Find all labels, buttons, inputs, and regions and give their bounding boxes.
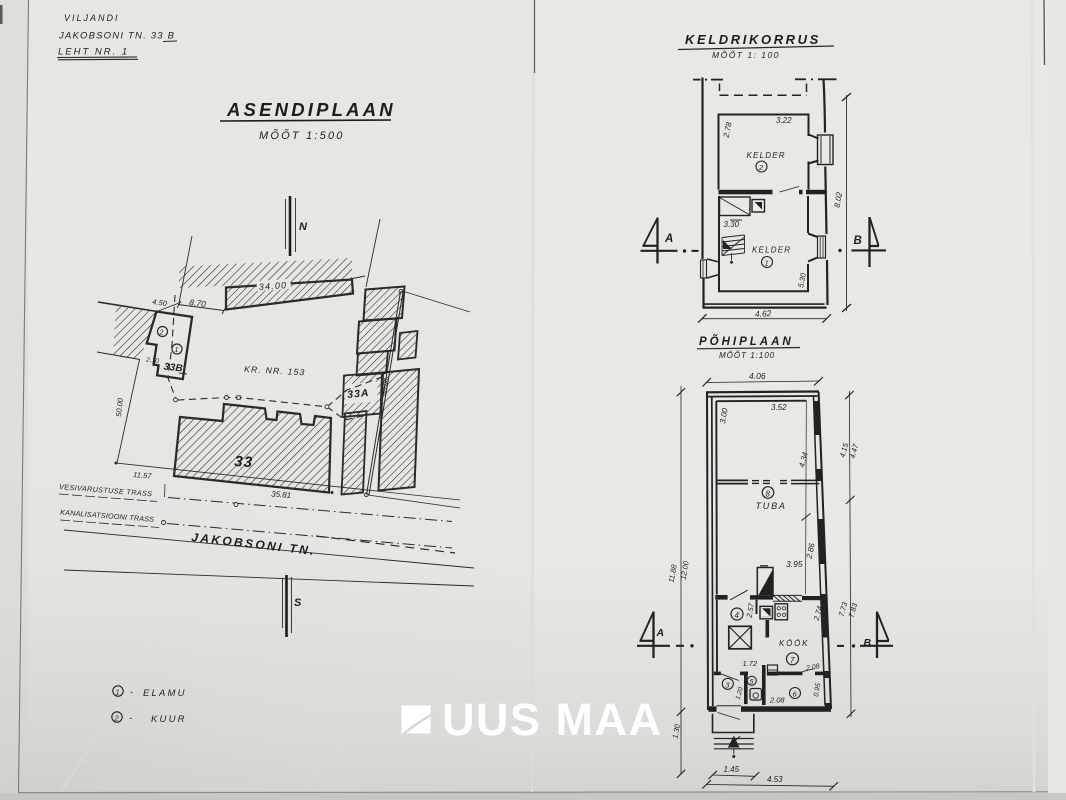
svg-text:-: - [130,687,133,698]
svg-text:35.81: 35.81 [271,490,292,500]
svg-text:2.08: 2.08 [769,696,785,705]
svg-text:MÕÕT 1: 100: MÕÕT 1: 100 [712,50,780,60]
svg-text:ASENDIPLAAN: ASENDIPLAAN [226,99,396,120]
svg-text:KUUR: KUUR [151,714,187,725]
svg-text:A: A [664,233,673,245]
svg-text:33B: 33B [163,362,183,375]
svg-text:ELAMU: ELAMU [143,688,187,699]
svg-text:4: 4 [735,611,740,620]
svg-text:8.70: 8.70 [189,297,207,309]
svg-text:2: 2 [758,163,764,172]
svg-text:4.06: 4.06 [749,371,766,381]
svg-text:4.62: 4.62 [755,308,772,319]
svg-text:KELDER: KELDER [747,151,786,160]
svg-text:4.53: 4.53 [767,775,783,784]
svg-text:33: 33 [234,453,254,471]
svg-text:B: B [864,637,872,649]
svg-text:7: 7 [790,656,795,665]
svg-text:-: - [129,713,132,724]
svg-text:34.00: 34.00 [258,280,287,292]
svg-text:JAKOBSONI TN. 33 B: JAKOBSONI TN. 33 B [58,31,175,42]
svg-text:11.57: 11.57 [133,470,153,481]
svg-text:LEHT NR. 1: LEHT NR. 1 [58,47,129,58]
svg-text:KÖÖK: KÖÖK [779,639,809,648]
svg-text:2.10: 2.10 [145,356,160,364]
svg-text:B: B [854,235,862,247]
svg-text:A: A [656,627,665,639]
svg-text:UUS MAA: UUS MAA [442,694,663,745]
svg-text:PÕHIPLAAN: PÕHIPLAAN [699,335,794,348]
svg-text:MÕÕT 1:500: MÕÕT 1:500 [259,129,345,142]
svg-text:3.22: 3.22 [776,116,792,125]
svg-text:2: 2 [159,330,164,337]
svg-text:1: 1 [765,259,769,268]
svg-text:N: N [299,221,308,233]
svg-text:KELDRIKORRUS: KELDRIKORRUS [685,32,821,47]
svg-text:1.72: 1.72 [743,659,758,668]
svg-text:MÕÕT 1:100: MÕÕT 1:100 [719,351,775,360]
svg-text:3.52: 3.52 [771,403,787,412]
svg-text:3.95: 3.95 [786,559,803,569]
svg-text:VILJANDI: VILJANDI [64,13,120,23]
svg-text:3.30: 3.30 [724,220,740,229]
svg-text:5: 5 [750,679,754,686]
svg-text:8: 8 [766,490,771,499]
svg-text:1: 1 [116,688,120,697]
svg-text:TUBA: TUBA [756,501,787,511]
svg-text:KELDER: KELDER [752,246,791,255]
svg-text:1: 1 [175,347,179,354]
svg-text:2: 2 [114,714,120,723]
svg-text:S: S [294,597,302,609]
svg-text:1.45: 1.45 [724,765,740,774]
svg-text:33A: 33A [347,387,370,401]
